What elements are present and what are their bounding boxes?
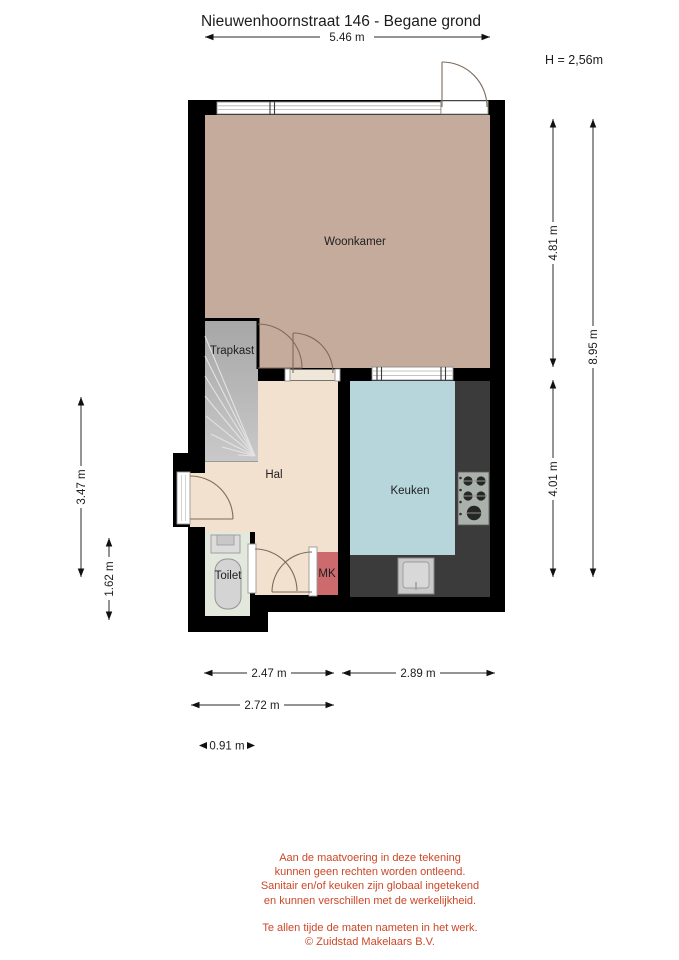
dim-bottom-kitchen: 2.89 m (342, 668, 495, 680)
toilet-bowl (215, 559, 241, 609)
label-mk: MK (318, 568, 336, 580)
mk-door-frame (309, 547, 317, 596)
svg-text:3.47 m: 3.47 m (76, 469, 88, 504)
svg-text:0.91 m: 0.91 m (209, 741, 244, 753)
kitchen-sink (398, 558, 434, 594)
svg-text:2.47 m: 2.47 m (251, 668, 286, 680)
disclaimer-line: kunnen geen rechten worden ontleend. (120, 865, 620, 879)
svg-text:4.81 m: 4.81 m (548, 225, 560, 260)
entrance-door-frame (177, 472, 190, 524)
stove (458, 472, 489, 525)
toilet-sink (211, 535, 240, 553)
room-keuken (350, 381, 455, 555)
disclaimer-line: Aan de maatvoering in deze tekening (120, 851, 620, 865)
floorplan-page: Nieuwenhoornstraat 146 - Begane grond (0, 0, 679, 960)
label-hal: Hal (265, 469, 282, 481)
label-trapkast: Trapkast (210, 345, 255, 357)
disclaimer-paragraph: Aan de maatvoering in deze tekening kunn… (120, 851, 620, 908)
disclaimer: Aan de maatvoering in deze tekening kunn… (120, 851, 620, 960)
disclaimer-line: en kunnen verschillen met de werkelijkhe… (120, 894, 620, 908)
svg-text:5.46 m: 5.46 m (329, 32, 364, 44)
svg-text:2.72 m: 2.72 m (244, 700, 279, 712)
dim-right-lower: 4.01 m (548, 380, 560, 577)
livingroom-door-opening (288, 370, 337, 381)
copyright-line: © Zuidstad Makelaars B.V. (120, 935, 620, 949)
svg-text:1.62 m: 1.62 m (104, 561, 116, 596)
kitchen-window-band (372, 367, 453, 380)
dim-bottom-outer: 2.72 m (191, 700, 334, 712)
disclaimer-line: Te allen tijde de maten nameten in het w… (120, 921, 620, 935)
dim-right-total: 8.95 m (588, 119, 600, 577)
dim-bottom-entry: 0.91 m (199, 741, 255, 753)
label-toilet: Toilet (215, 570, 243, 582)
dim-bottom-hall: 2.47 m (204, 668, 334, 680)
room-trapkast (205, 318, 258, 462)
disclaimer-footer: Te allen tijde de maten nameten in het w… (120, 921, 620, 949)
dim-left-toilet: 1.62 m (104, 538, 116, 620)
dim-left-hall: 3.47 m (76, 397, 88, 577)
floorplan-drawing: Nieuwenhoornstraat 146 - Begane grond (0, 0, 679, 960)
dim-right-upper: 4.81 m (548, 119, 560, 367)
svg-text:4.01 m: 4.01 m (548, 461, 560, 496)
front-door-frame (441, 101, 488, 114)
page-title: Nieuwenhoornstraat 146 - Begane grond (201, 13, 481, 30)
dim-top-width: 5.46 m (205, 32, 490, 44)
label-keuken: Keuken (390, 485, 429, 497)
svg-text:8.95 m: 8.95 m (588, 329, 600, 364)
label-woonkamer: Woonkamer (324, 236, 386, 248)
svg-text:2.89 m: 2.89 m (400, 668, 435, 680)
toilet-door-frame (248, 544, 256, 593)
front-door (441, 62, 488, 114)
disclaimer-line: Sanitair en/of keuken zijn globaal inget… (120, 879, 620, 893)
ceiling-height-label: H = 2,56m (545, 53, 603, 67)
